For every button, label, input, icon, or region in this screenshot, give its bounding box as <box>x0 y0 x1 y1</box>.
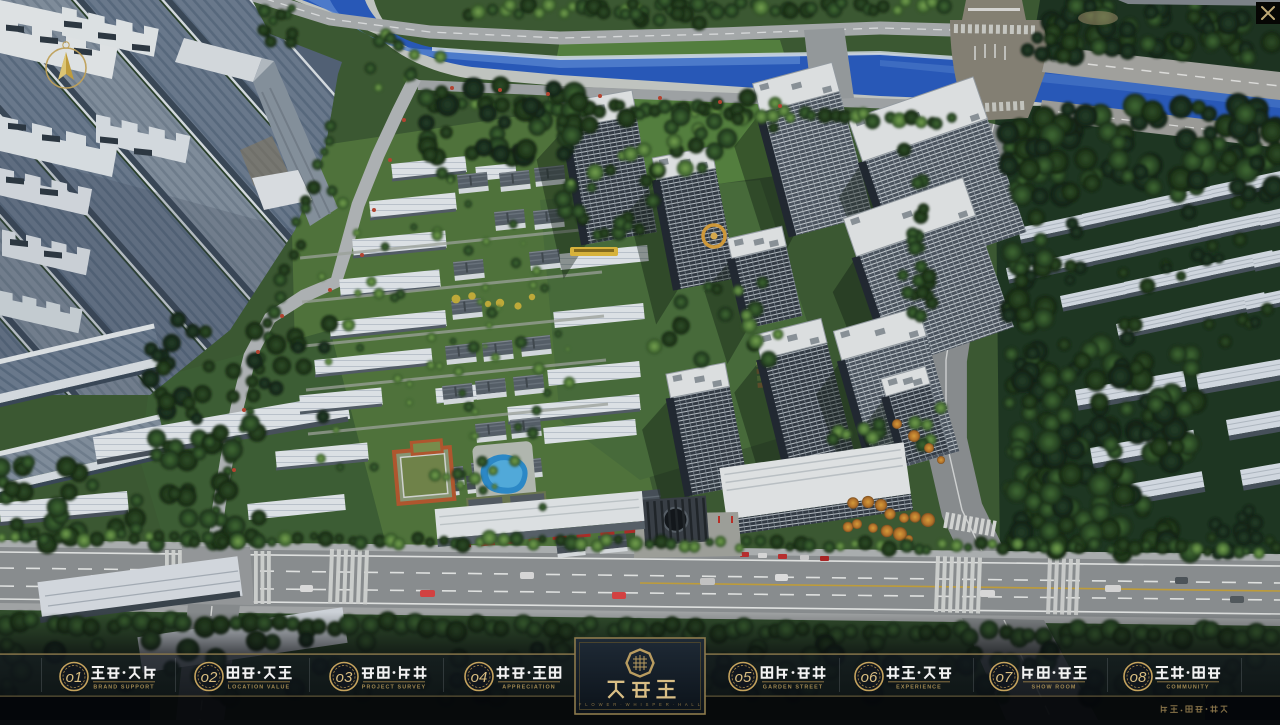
svg-text:LOCATION VALUE: LOCATION VALUE <box>228 685 291 691</box>
svg-text:PROJECT SURVEY: PROJECT SURVEY <box>362 685 426 691</box>
svg-text:o3: o3 <box>336 669 353 686</box>
svg-text:o1: o1 <box>66 669 83 686</box>
svg-text:o4: o4 <box>471 669 488 686</box>
svg-text:o8: o8 <box>1130 669 1147 686</box>
svg-text:EXPERIENCE: EXPERIENCE <box>896 685 942 691</box>
svg-text:APPRECIATION: APPRECIATION <box>502 685 556 691</box>
svg-text:o2: o2 <box>201 669 218 686</box>
svg-text:o7: o7 <box>996 669 1013 686</box>
svg-text:o6: o6 <box>861 669 878 686</box>
svg-text:BRAND SUPPORT: BRAND SUPPORT <box>93 685 154 691</box>
svg-text:COMMUNITY: COMMUNITY <box>1166 685 1209 691</box>
svg-text:F L O W E R · W H I S P E R ·: F L O W E R · W H I S P E R · H A L L <box>579 702 702 707</box>
svg-text:GARDEN STREET: GARDEN STREET <box>763 685 823 691</box>
svg-text:SHOW ROOM: SHOW ROOM <box>1032 685 1077 691</box>
svg-text:o5: o5 <box>735 669 752 686</box>
